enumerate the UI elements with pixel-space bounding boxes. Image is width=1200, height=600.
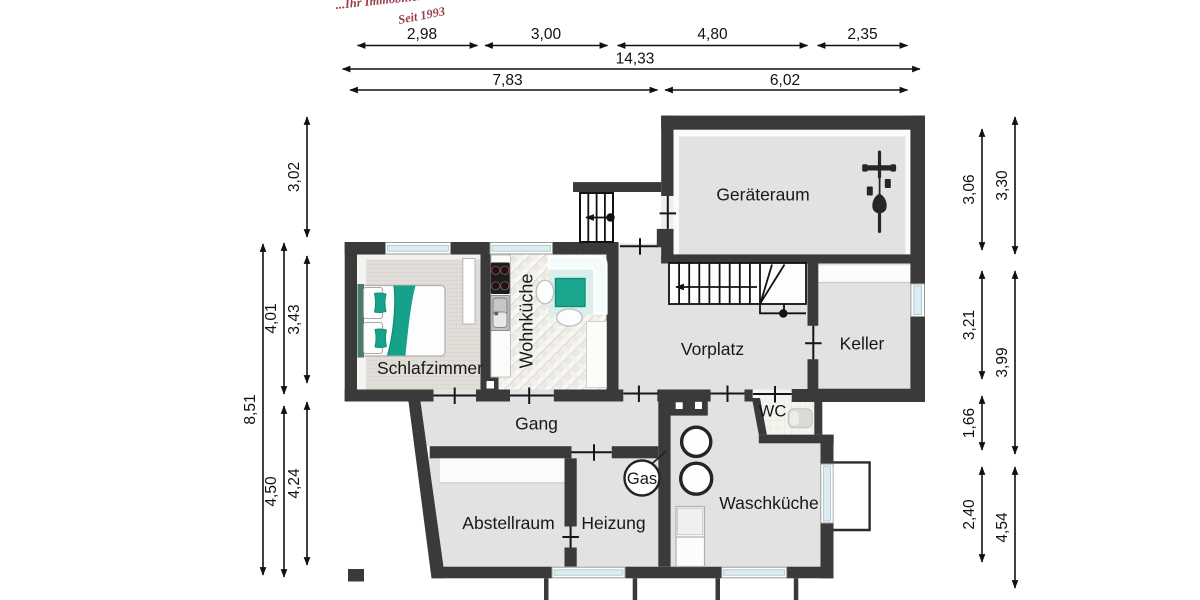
svg-text:Keller: Keller bbox=[840, 334, 885, 354]
svg-text:4,01: 4,01 bbox=[263, 303, 280, 333]
svg-text:8,51: 8,51 bbox=[242, 394, 259, 424]
svg-text:Wohnküche: Wohnküche bbox=[517, 274, 537, 369]
svg-text:Vorplatz: Vorplatz bbox=[681, 339, 744, 359]
svg-text:3,21: 3,21 bbox=[961, 310, 978, 340]
svg-text:4,80: 4,80 bbox=[697, 26, 728, 43]
svg-text:6,02: 6,02 bbox=[770, 72, 800, 89]
svg-text:3,99: 3,99 bbox=[994, 347, 1011, 377]
svg-text:4,24: 4,24 bbox=[286, 468, 303, 499]
svg-text:3,43: 3,43 bbox=[286, 304, 303, 334]
svg-text:4,54: 4,54 bbox=[994, 512, 1011, 543]
svg-text:7,83: 7,83 bbox=[492, 72, 522, 89]
svg-text:4,50: 4,50 bbox=[263, 476, 280, 507]
svg-text:Schlafzimmer: Schlafzimmer bbox=[377, 358, 483, 378]
svg-text:Heizung: Heizung bbox=[581, 513, 645, 533]
svg-text:3,00: 3,00 bbox=[531, 26, 562, 43]
svg-text:Waschküche: Waschküche bbox=[719, 493, 819, 513]
svg-text:1,66: 1,66 bbox=[961, 408, 978, 438]
svg-text:3,02: 3,02 bbox=[286, 162, 303, 192]
svg-text:3,06: 3,06 bbox=[961, 174, 978, 204]
svg-text:3,30: 3,30 bbox=[994, 170, 1011, 201]
svg-text:Gang: Gang bbox=[515, 414, 558, 434]
svg-text:2,40: 2,40 bbox=[961, 499, 978, 530]
svg-text:Gas: Gas bbox=[627, 470, 657, 488]
svg-text:2,98: 2,98 bbox=[407, 26, 437, 43]
svg-text:Abstellraum: Abstellraum bbox=[462, 513, 554, 533]
svg-text:14,33: 14,33 bbox=[616, 51, 655, 68]
svg-text:2,35: 2,35 bbox=[847, 26, 877, 43]
svg-text:Geräteraum: Geräteraum bbox=[716, 185, 809, 205]
svg-text:WC: WC bbox=[759, 403, 787, 421]
